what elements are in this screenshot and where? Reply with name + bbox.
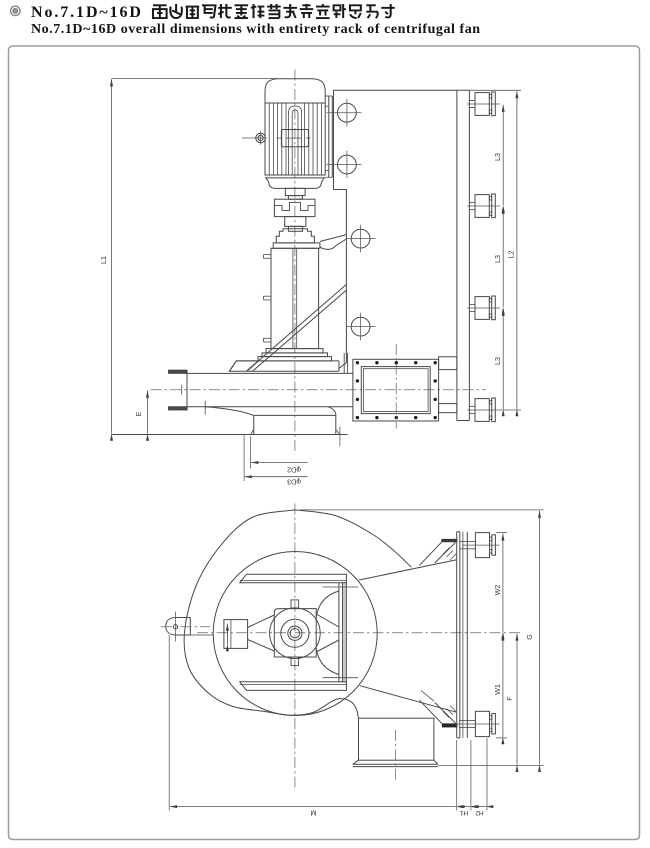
svg-text:φD2: φD2 xyxy=(287,465,301,474)
svg-text:φD3: φD3 xyxy=(287,478,301,487)
svg-text:G: G xyxy=(525,634,534,640)
svg-text:M: M xyxy=(311,809,317,818)
svg-text:L1: L1 xyxy=(99,256,108,264)
svg-text:L3: L3 xyxy=(493,255,502,263)
svg-text:W2: W2 xyxy=(493,585,502,596)
svg-text:No.7.1D~16D: No.7.1D~16D xyxy=(31,4,143,21)
svg-text:H2: H2 xyxy=(475,809,484,816)
svg-text:L3: L3 xyxy=(493,357,502,365)
svg-text:F: F xyxy=(505,696,514,701)
svg-text:L2: L2 xyxy=(507,251,516,259)
svg-text:W1: W1 xyxy=(493,684,502,695)
svg-text:H1: H1 xyxy=(459,809,468,816)
svg-text:E: E xyxy=(134,411,143,416)
svg-text:No.7.1D~16D overall dimensions: No.7.1D~16D overall dimensions with enti… xyxy=(31,22,481,37)
svg-text:L3: L3 xyxy=(493,153,502,161)
